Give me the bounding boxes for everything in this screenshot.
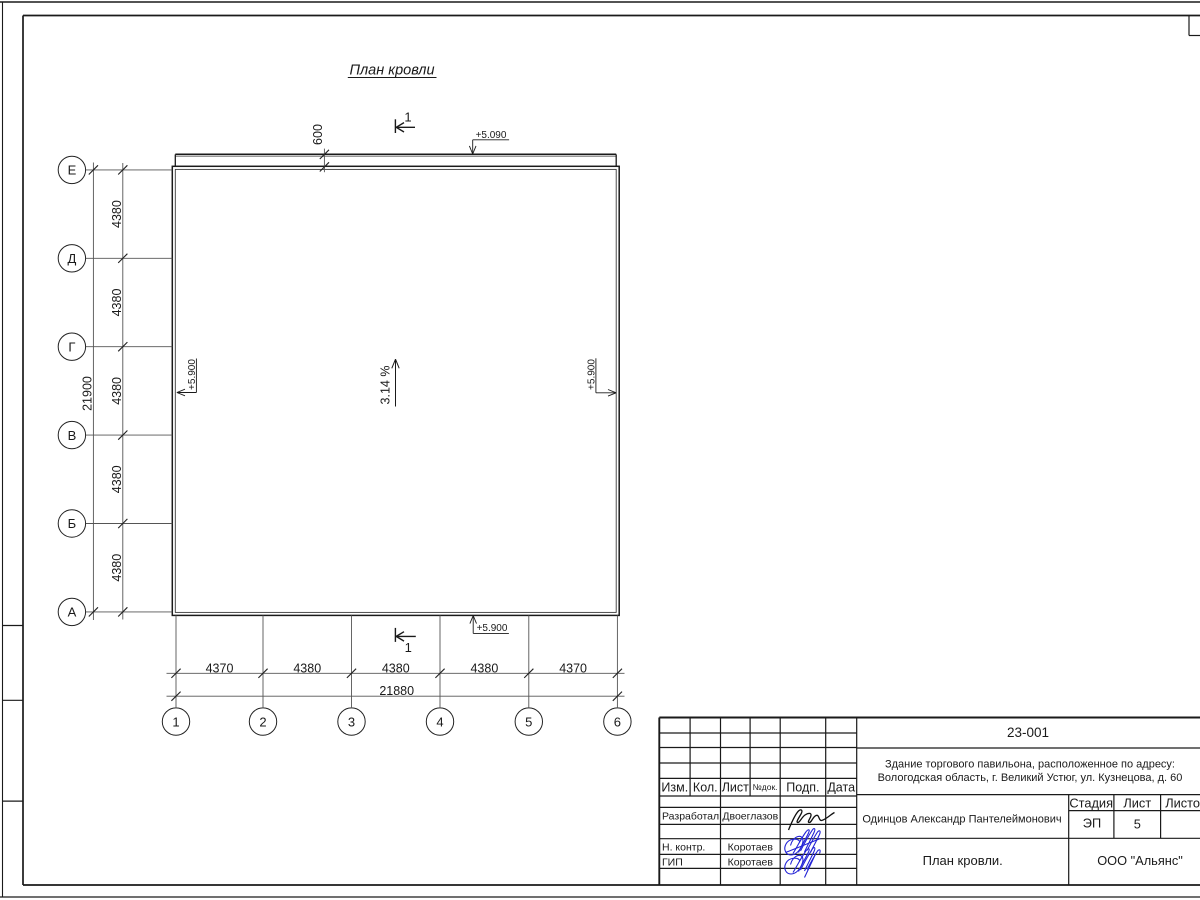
svg-text:Одинцов Александр Пантелеймоно: Одинцов Александр Пантелеймонович (862, 814, 1061, 826)
svg-text:1: 1 (172, 714, 179, 729)
svg-text:Стадия: Стадия (1069, 795, 1113, 810)
svg-text:23-001: 23-001 (1007, 725, 1049, 740)
svg-text:Здание торгового павильона, ра: Здание торгового павильона, расположенно… (885, 758, 1175, 770)
svg-text:Е: Е (68, 163, 77, 178)
svg-text:600: 600 (311, 124, 325, 145)
svg-text:№док.: №док. (753, 782, 778, 792)
svg-text:2: 2 (259, 714, 266, 729)
svg-text:ЭП: ЭП (1083, 816, 1101, 831)
svg-text:5: 5 (525, 714, 532, 729)
svg-text:ООО "Альянс": ООО "Альянс" (1097, 853, 1183, 868)
svg-text:+5.900: +5.900 (477, 623, 508, 634)
svg-text:Д: Д (67, 251, 76, 266)
svg-text:План кровли: План кровли (349, 63, 434, 79)
svg-text:Изм.: Изм. (661, 780, 688, 794)
svg-text:Подп.: Подп. (786, 780, 819, 794)
svg-text:В: В (68, 428, 77, 443)
svg-text:Б: Б (68, 516, 77, 531)
svg-text:4380: 4380 (110, 465, 124, 493)
svg-text:1: 1 (405, 640, 412, 655)
svg-text:ГИП: ГИП (662, 856, 683, 868)
svg-text:4370: 4370 (206, 661, 234, 675)
svg-text:3.14 %: 3.14 % (379, 366, 393, 405)
svg-text:4: 4 (436, 714, 443, 729)
svg-text:Г: Г (68, 339, 75, 354)
svg-text:Кол.: Кол. (693, 780, 718, 794)
svg-text:4380: 4380 (110, 554, 124, 582)
svg-text:Листов: Листов (1165, 795, 1200, 810)
svg-text:Коротаев: Коротаев (728, 856, 774, 868)
svg-text:21880: 21880 (379, 684, 414, 698)
svg-text:А: А (68, 605, 77, 620)
svg-text:Лист: Лист (722, 780, 749, 794)
svg-text:4380: 4380 (470, 661, 498, 675)
svg-text:Лист: Лист (1123, 795, 1151, 810)
svg-text:5: 5 (1134, 817, 1141, 832)
svg-text:Дата: Дата (827, 780, 855, 794)
svg-text:Разработал: Разработал (662, 811, 719, 823)
svg-text:1: 1 (404, 110, 411, 125)
svg-text:4380: 4380 (110, 200, 124, 228)
svg-text:Двоеглазов: Двоеглазов (722, 811, 778, 823)
svg-text:4370: 4370 (559, 661, 587, 675)
svg-text:3: 3 (348, 714, 355, 729)
svg-text:Коротаев: Коротаев (728, 842, 774, 854)
svg-text:4380: 4380 (110, 289, 124, 317)
svg-text:21900: 21900 (81, 376, 95, 411)
svg-text:4380: 4380 (382, 661, 410, 675)
svg-text:4380: 4380 (293, 661, 321, 675)
svg-text:4380: 4380 (110, 377, 124, 405)
svg-text:Вологодская область, г. Велики: Вологодская область, г. Великий Устюг, у… (878, 772, 1183, 784)
svg-text:План кровли.: План кровли. (923, 853, 1003, 868)
svg-text:Н. контр.: Н. контр. (662, 842, 705, 854)
svg-text:6: 6 (614, 714, 621, 729)
